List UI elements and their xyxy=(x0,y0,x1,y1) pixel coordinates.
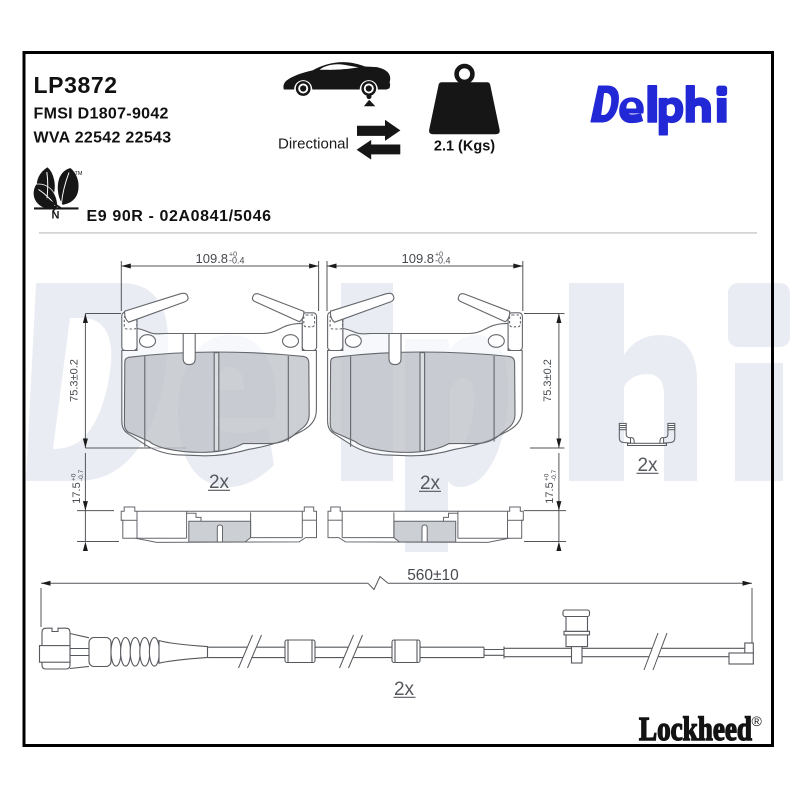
svg-text:560±10: 560±10 xyxy=(407,567,459,584)
svg-text:WVA 22542 22543: WVA 22542 22543 xyxy=(34,129,172,146)
svg-text:Lockheed: Lockheed xyxy=(639,711,752,748)
svg-text:75.3±0.2: 75.3±0.2 xyxy=(542,359,554,402)
svg-text:®: ® xyxy=(752,713,763,729)
svg-text:LP3872: LP3872 xyxy=(34,72,118,98)
svg-text:N: N xyxy=(52,210,60,222)
svg-text:Directional: Directional xyxy=(278,136,349,153)
svg-text:17.5: 17.5 xyxy=(71,482,83,503)
svg-text:+0: +0 xyxy=(71,473,78,481)
svg-text:17.5: 17.5 xyxy=(544,482,556,503)
svg-text:109.8: 109.8 xyxy=(196,251,229,266)
svg-text:E9 90R - 02A0841/5046: E9 90R - 02A0841/5046 xyxy=(87,208,272,225)
svg-text:-0.7: -0.7 xyxy=(78,469,85,481)
svg-text:75.3±0.2: 75.3±0.2 xyxy=(68,359,80,402)
svg-text:-0.7: -0.7 xyxy=(551,469,558,481)
svg-text:2.1 (Kgs): 2.1 (Kgs) xyxy=(434,139,495,155)
svg-text:109.8: 109.8 xyxy=(402,251,435,266)
svg-text:-0.4: -0.4 xyxy=(435,256,451,266)
svg-text:+0: +0 xyxy=(544,473,551,481)
svg-text:FMSI D1807-9042: FMSI D1807-9042 xyxy=(34,106,169,123)
svg-text:TM: TM xyxy=(75,171,83,177)
svg-text:-0.4: -0.4 xyxy=(229,256,245,266)
